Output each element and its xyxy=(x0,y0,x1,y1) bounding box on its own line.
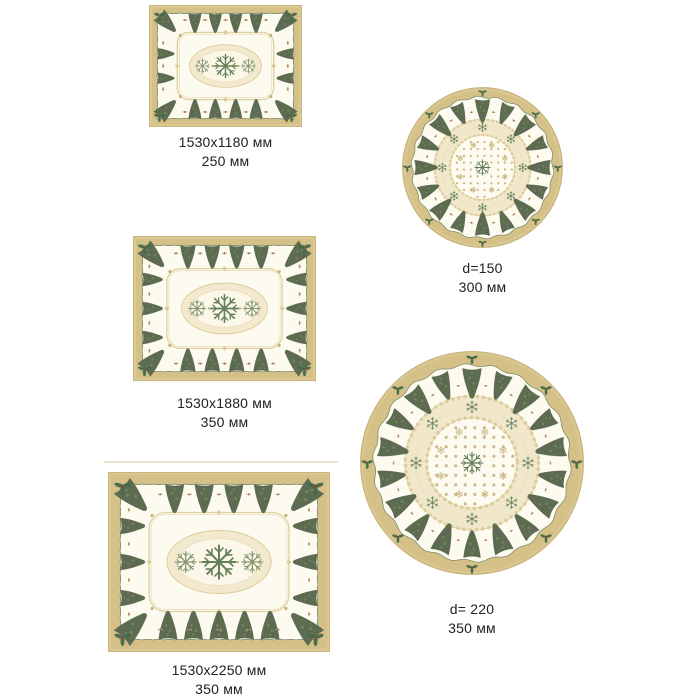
tablecloth-rect-medium-image xyxy=(133,236,316,381)
product-size-label: 1530x1880 мм xyxy=(133,394,316,413)
product-tile-1530x1880: 1530x1880 мм 350 мм xyxy=(133,236,316,432)
product-size-label: d= 220 xyxy=(360,600,584,619)
product-height-label: 250 мм xyxy=(149,152,302,171)
product-caption: 1530x1880 мм 350 мм xyxy=(133,394,316,432)
product-height-label: 300 мм xyxy=(402,278,563,297)
tablecloth-rect-large-image xyxy=(108,472,330,652)
product-size-label: 1530x1180 мм xyxy=(149,133,302,152)
tablecloth-round-small-image xyxy=(402,87,563,248)
product-caption: d= 220 350 мм xyxy=(360,600,584,638)
product-height-label: 350 мм xyxy=(133,413,316,432)
product-tile-1530x2250: 1530x2250 мм 350 мм xyxy=(108,472,330,699)
product-size-label: d=150 xyxy=(402,259,563,278)
tablecloth-round-large-image xyxy=(360,351,584,575)
product-tile-d150: d=150 300 мм xyxy=(402,87,563,297)
product-tile-1530x1180: 1530x1180 мм 250 мм xyxy=(149,5,302,171)
product-height-label: 350 мм xyxy=(360,619,584,638)
cloth-top-edge-line xyxy=(104,461,338,463)
catalog-page: { "page": { "background_color": "#ffffff… xyxy=(0,0,700,700)
product-size-label: 1530x2250 мм xyxy=(108,661,330,680)
product-tile-d220: d= 220 350 мм xyxy=(360,351,584,638)
product-caption: 1530x2250 мм 350 мм xyxy=(108,661,330,699)
product-height-label: 350 мм xyxy=(108,680,330,699)
product-caption: 1530x1180 мм 250 мм xyxy=(149,133,302,171)
tablecloth-rect-small-image xyxy=(149,5,302,127)
product-caption: d=150 300 мм xyxy=(402,259,563,297)
